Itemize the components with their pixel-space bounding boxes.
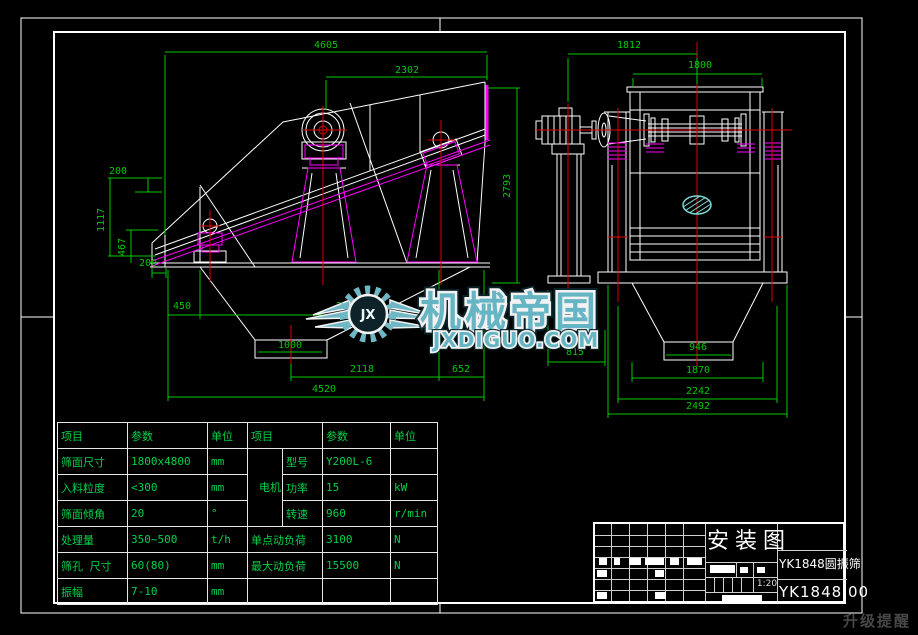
- cad-sheet: 4605 2302 200 1117 467 200 450 2455 1000…: [0, 0, 918, 635]
- dim-base-offset: 200: [139, 258, 157, 269]
- product-name: YK1848圆振筛: [779, 550, 847, 579]
- motor-group-label: 电机: [248, 449, 283, 527]
- param-unit: kW: [391, 475, 438, 501]
- param-value: 15: [323, 475, 391, 501]
- param-label: [248, 579, 323, 605]
- param-value: 3100: [323, 527, 391, 553]
- param-unit: mm: [208, 553, 248, 579]
- watermark-domain: JXDIGUO.COM: [431, 328, 599, 352]
- param-value: 7-10: [128, 579, 208, 605]
- drawing-scale: 1:20: [755, 577, 779, 592]
- param-value: [323, 579, 391, 605]
- param-label: 单点动负荷: [248, 527, 323, 553]
- dim-base-length: 4520: [312, 384, 336, 395]
- param-label: 转速: [283, 501, 323, 527]
- col-header: 项目: [58, 423, 128, 449]
- screen-deck-lines: [152, 85, 490, 266]
- col-header: 单位: [208, 423, 248, 449]
- drawing-title: 安装图: [707, 524, 779, 562]
- param-label: 处理量: [58, 527, 128, 553]
- param-unit: [391, 449, 438, 475]
- param-unit: r/min: [391, 501, 438, 527]
- param-unit: N: [391, 527, 438, 553]
- parameter-table-right: 项目 参数 单位 电机 型号 Y200L-6 功率 15 kW 转速 960 r…: [247, 422, 438, 605]
- logo-monogram: JX: [360, 308, 376, 323]
- winged-gear-logo: JX: [306, 290, 438, 338]
- dim-base-height: 467: [117, 238, 128, 256]
- watermark: JX 机械帝国 机械帝国 JXDIGUO.COM JXDIGUO.COM: [306, 288, 600, 352]
- param-value: 20: [128, 501, 208, 527]
- dim-motor-span: 1812: [617, 40, 641, 51]
- param-label: 筛面倾角: [58, 501, 128, 527]
- dim-top-offset: 200: [109, 166, 127, 177]
- dim-width: 1800: [688, 60, 712, 71]
- motor-label-text: 电机: [259, 479, 271, 497]
- param-value: 15500: [323, 553, 391, 579]
- param-label: 入料粒度: [58, 475, 128, 501]
- param-unit: mm: [208, 579, 248, 605]
- param-unit: °: [208, 501, 248, 527]
- dim-overall-length: 4605: [314, 40, 338, 51]
- param-unit: mm: [208, 475, 248, 501]
- col-header: 参数: [323, 423, 391, 449]
- dim-1870: 1870: [686, 365, 710, 376]
- param-label: 振幅: [58, 579, 128, 605]
- front-view-dimensions: 1812 1800 815 946 1870 2242 2492: [548, 40, 787, 418]
- title-block: 安装图 1:20 YK1848圆振筛 YK1848.00: [593, 522, 845, 603]
- param-value: 60(80): [128, 553, 208, 579]
- dim-to-exciter: 2302: [395, 65, 419, 76]
- dim-2118: 2118: [350, 364, 374, 375]
- param-value: 960: [323, 501, 391, 527]
- param-label: 最大动负荷: [248, 553, 323, 579]
- param-value: 1800x4800: [128, 449, 208, 475]
- dim-base-width: 2492: [686, 401, 710, 412]
- col-header: 参数: [128, 423, 208, 449]
- parameter-table-left: 项目 参数 单位 筛面尺寸1800x4800mm 入料粒度<300mm 筛面倾角…: [57, 422, 248, 605]
- param-label: 筛孔 尺寸: [58, 553, 128, 579]
- param-unit: [391, 579, 438, 605]
- dim-feed-height: 1117: [96, 208, 107, 232]
- param-label: 筛面尺寸: [58, 449, 128, 475]
- dim-450: 450: [173, 301, 191, 312]
- corner-note: 升级提醒: [843, 610, 918, 631]
- param-unit: mm: [208, 449, 248, 475]
- dim-height: 2793: [502, 174, 513, 198]
- dim-front-opening: 946: [689, 342, 707, 353]
- inspection-hole: [680, 187, 718, 232]
- dim-652: 652: [452, 364, 470, 375]
- param-unit: t/h: [208, 527, 248, 553]
- col-header: 项目: [248, 423, 323, 449]
- drawing-number: YK1848.00: [779, 579, 847, 605]
- dim-2242: 2242: [686, 386, 710, 397]
- param-label: 功率: [283, 475, 323, 501]
- param-value: 350~500: [128, 527, 208, 553]
- param-value: Y200L-6: [323, 449, 391, 475]
- spring-stacks: [607, 143, 781, 159]
- col-header: 单位: [391, 423, 438, 449]
- param-value: <300: [128, 475, 208, 501]
- param-label: 型号: [283, 449, 323, 475]
- dim-opening: 1000: [278, 340, 302, 351]
- param-unit: N: [391, 553, 438, 579]
